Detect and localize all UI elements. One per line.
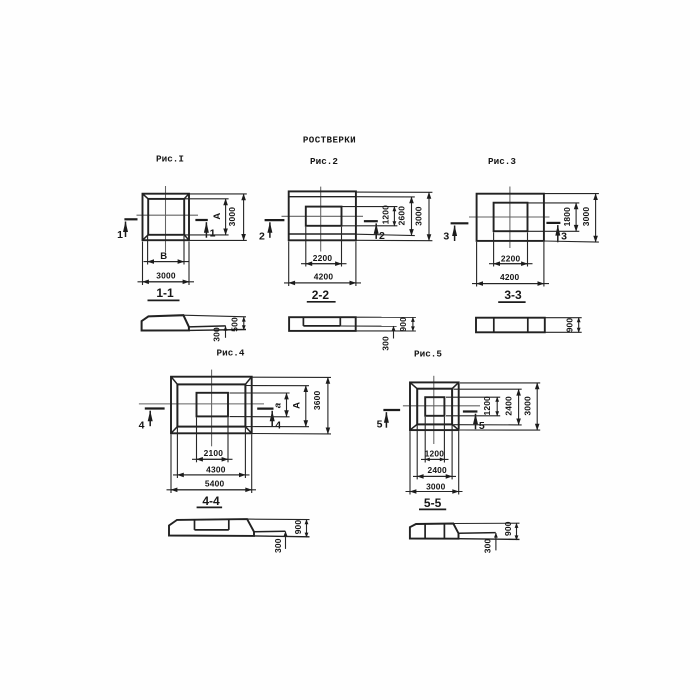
svg-text:Рис.5: Рис.5 (414, 348, 442, 359)
svg-text:300: 300 (212, 327, 222, 342)
svg-text:1200: 1200 (380, 205, 390, 225)
svg-text:900: 900 (293, 520, 303, 535)
svg-text:5-5: 5-5 (424, 496, 442, 510)
svg-text:3000: 3000 (414, 206, 424, 226)
svg-text:2600: 2600 (397, 206, 407, 226)
svg-text:900: 900 (503, 521, 513, 536)
svg-text:3000: 3000 (581, 207, 591, 227)
svg-text:а: а (273, 403, 284, 408)
svg-text:Рис.I: Рис.I (156, 153, 184, 164)
svg-text:4: 4 (275, 420, 281, 432)
svg-text:3600: 3600 (312, 391, 322, 411)
svg-text:1: 1 (210, 228, 216, 240)
svg-text:2100: 2100 (204, 448, 224, 458)
svg-text:3000: 3000 (426, 481, 446, 491)
svg-text:5400: 5400 (205, 479, 225, 489)
svg-text:3-3: 3-3 (504, 288, 522, 302)
svg-text:4300: 4300 (206, 464, 226, 474)
svg-text:3: 3 (443, 231, 449, 243)
svg-text:3000: 3000 (522, 396, 532, 416)
svg-text:2200: 2200 (313, 253, 333, 263)
svg-text:2: 2 (259, 230, 265, 242)
svg-text:500: 500 (230, 317, 240, 332)
svg-text:Рис.3: Рис.3 (488, 156, 516, 167)
svg-text:А: А (212, 213, 223, 220)
svg-text:Рис.4: Рис.4 (217, 347, 245, 358)
svg-text:2400: 2400 (427, 465, 447, 475)
svg-text:РОСТВЕРКИ: РОСТВЕРКИ (303, 135, 356, 146)
svg-text:1200: 1200 (482, 396, 492, 416)
svg-text:1800: 1800 (562, 207, 572, 227)
svg-text:Рис.2: Рис.2 (310, 156, 338, 167)
svg-text:3000: 3000 (227, 207, 237, 227)
svg-text:3: 3 (561, 230, 567, 242)
svg-text:2400: 2400 (504, 396, 514, 416)
svg-text:В: В (160, 251, 167, 262)
svg-text:5: 5 (377, 418, 383, 430)
svg-text:2-2: 2-2 (312, 288, 330, 302)
svg-text:900: 900 (565, 318, 575, 333)
svg-text:1-1: 1-1 (156, 286, 174, 300)
svg-text:300: 300 (380, 336, 390, 351)
svg-text:4200: 4200 (314, 272, 334, 282)
svg-text:2200: 2200 (501, 253, 521, 263)
svg-text:4: 4 (139, 420, 145, 432)
svg-text:300: 300 (273, 538, 283, 553)
svg-text:4200: 4200 (500, 272, 520, 282)
svg-text:300: 300 (483, 538, 493, 553)
svg-text:1200: 1200 (425, 449, 445, 459)
svg-text:3000: 3000 (156, 270, 176, 280)
svg-text:900: 900 (398, 317, 408, 332)
svg-text:4-4: 4-4 (202, 494, 220, 508)
svg-text:А: А (292, 402, 303, 409)
svg-text:1: 1 (117, 229, 123, 241)
